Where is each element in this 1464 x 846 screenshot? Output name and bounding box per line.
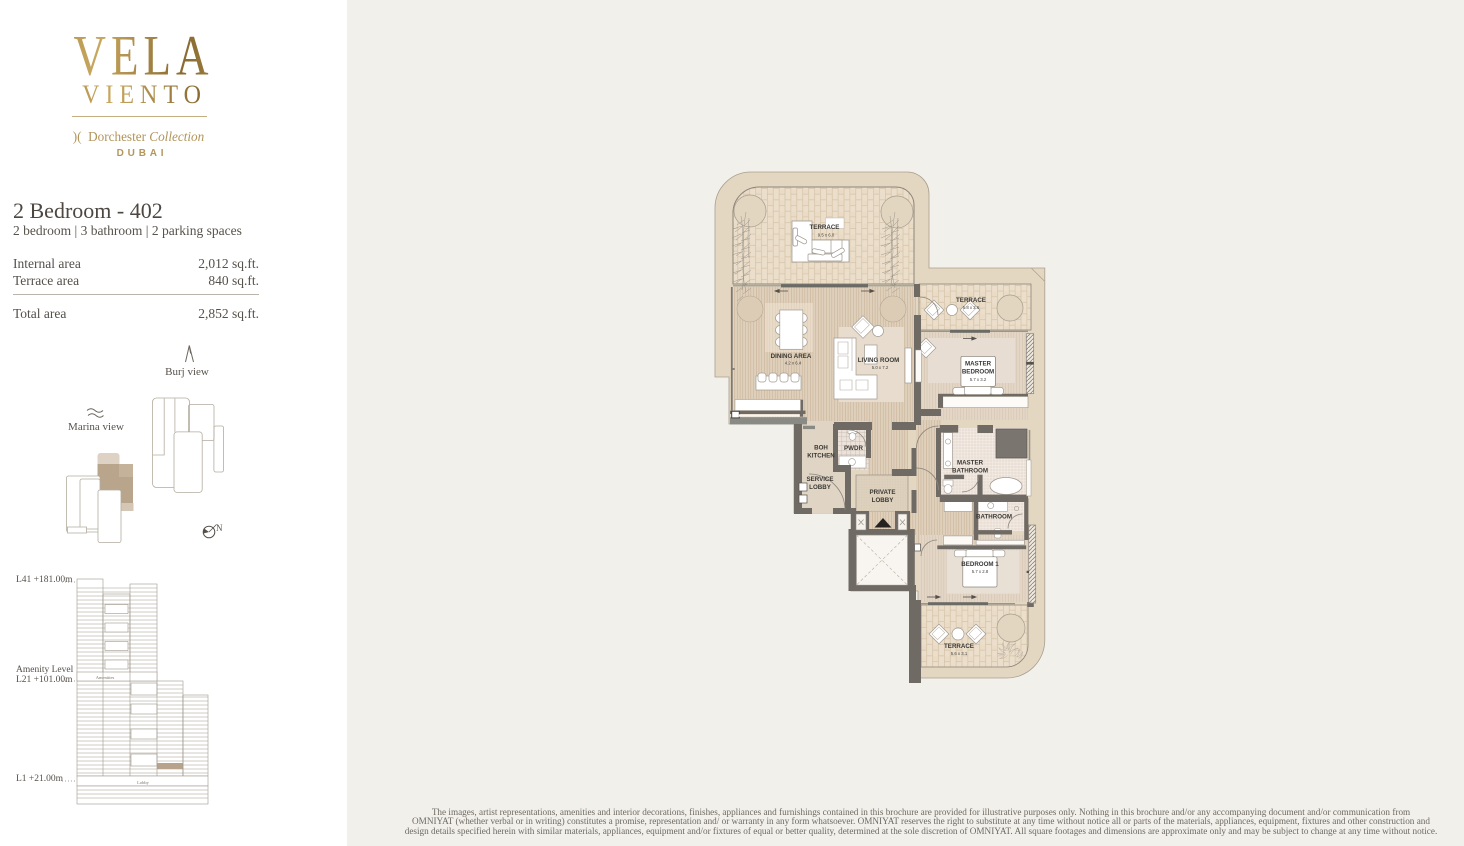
svg-text:KITCHEN: KITCHEN	[807, 453, 835, 460]
svg-text:TERRACE: TERRACE	[944, 643, 974, 650]
svg-text:9.5 x 6.0: 9.5 x 6.0	[818, 233, 835, 238]
svg-text:DINING AREA: DINING AREA	[771, 353, 812, 360]
svg-text:LOBBY: LOBBY	[872, 497, 895, 504]
svg-text:5.6 x 3.1: 5.6 x 3.1	[951, 651, 968, 656]
svg-text:BATHROOM: BATHROOM	[976, 514, 1012, 521]
svg-text:Lobby: Lobby	[137, 780, 149, 785]
svg-text:Amenities: Amenities	[96, 675, 115, 680]
svg-text:TERRACE: TERRACE	[810, 224, 840, 231]
svg-text:4.2 x 6.4: 4.2 x 6.4	[785, 361, 802, 366]
svg-text:TERRACE: TERRACE	[956, 297, 986, 304]
svg-text:5.0 x 7.2: 5.0 x 7.2	[872, 365, 889, 370]
svg-text:MASTER: MASTER	[965, 361, 992, 368]
svg-text:5.7 x 2.8: 5.7 x 2.8	[972, 569, 989, 574]
svg-text:SERVICE: SERVICE	[806, 476, 833, 483]
svg-text:PWDR: PWDR	[844, 445, 863, 452]
svg-text:LIVING ROOM: LIVING ROOM	[858, 357, 900, 364]
svg-text:BATHROOM: BATHROOM	[952, 468, 988, 475]
svg-text:LOBBY: LOBBY	[809, 484, 832, 491]
svg-text:BOH: BOH	[814, 445, 828, 452]
svg-text:5.8 x 2.6: 5.8 x 2.6	[963, 305, 980, 310]
svg-text:MASTER: MASTER	[957, 460, 984, 467]
svg-text:BEDROOM: BEDROOM	[962, 369, 994, 376]
svg-text:BEDROOM 1: BEDROOM 1	[961, 561, 999, 568]
svg-text:5.7 x 3.2: 5.7 x 3.2	[970, 377, 987, 382]
svg-text:PRIVATE: PRIVATE	[870, 489, 896, 496]
svg-text:N: N	[216, 523, 223, 533]
